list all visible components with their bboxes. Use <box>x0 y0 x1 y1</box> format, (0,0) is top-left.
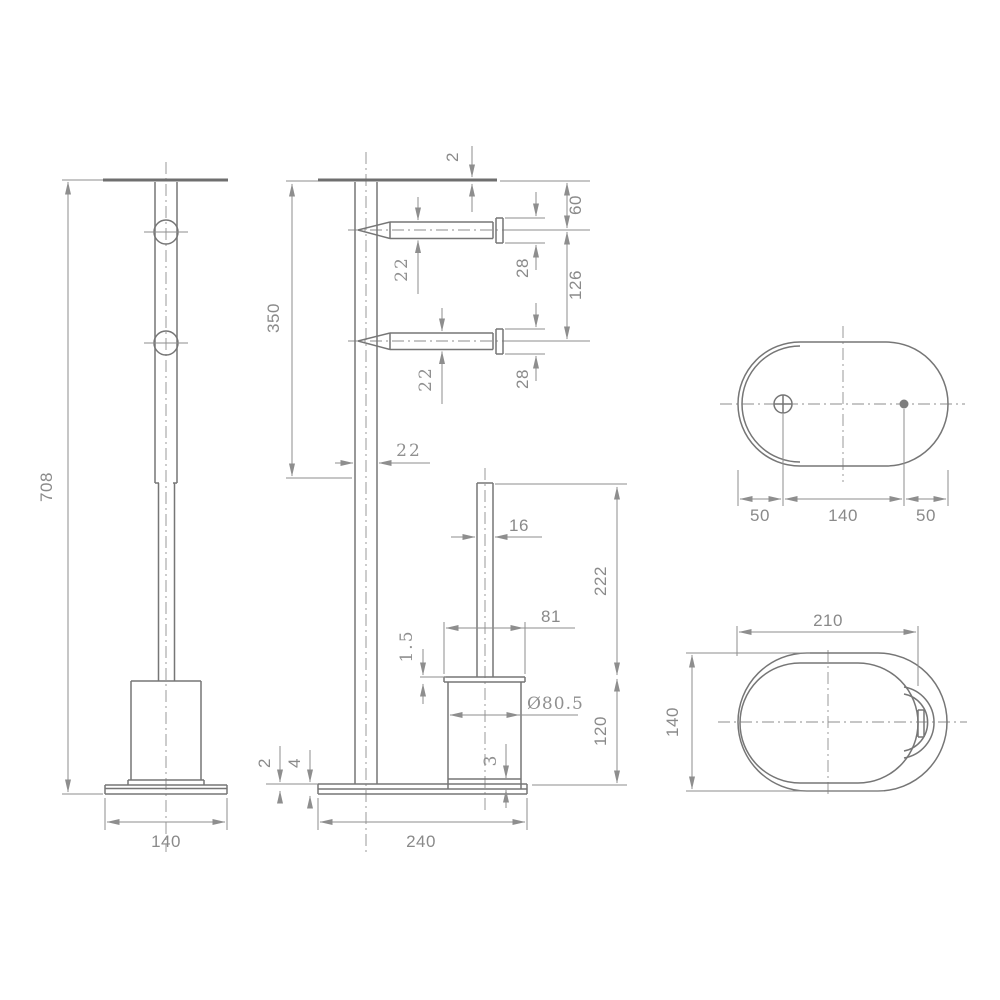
dim-arm2-end: 28 <box>513 369 532 389</box>
dim-cup-top-width: 81 <box>541 607 561 626</box>
dim-plate-left-offset: 50 <box>750 506 770 525</box>
plate-top-centerlines <box>720 326 965 482</box>
side-view: 2 350 60 126 28 22 28 22 22 16 <box>255 146 627 852</box>
dim-arm-spacing: 126 <box>566 270 585 300</box>
cup-top-view: 210 140 <box>663 611 967 795</box>
dim-top-to-arm: 60 <box>566 195 585 215</box>
dim-upper-height: 350 <box>264 303 283 333</box>
side-view-paper-arm-lower <box>358 329 503 354</box>
cup-top-pole-section <box>918 710 924 737</box>
cup-top-clip-arcs <box>904 687 934 758</box>
dim-handle-width: 16 <box>509 516 529 535</box>
dim-cup-foot: 3 <box>481 754 501 767</box>
technical-drawing-sheet: 708 140 2 350 60 126 28 22 <box>0 0 1000 1000</box>
dim-base-length: 240 <box>406 832 436 851</box>
dim-base-thickness: 4 <box>285 758 304 768</box>
side-view-base-plate <box>318 784 527 794</box>
dim-base-sheet: 2 <box>255 758 274 768</box>
dim-arm1-tube: 22 <box>392 256 412 282</box>
side-view-brush-cup <box>444 677 525 789</box>
dim-cup-diameter: Ø80.5 <box>527 694 584 714</box>
dim-plate-hole-spacing: 140 <box>828 506 858 525</box>
dim-arm2-tube: 22 <box>416 366 436 392</box>
dim-cup-top-length: 210 <box>813 611 843 630</box>
dim-pole-width: 22 <box>396 441 422 461</box>
dim-handle-height: 222 <box>591 566 610 596</box>
plate-top-view: 50 140 50 <box>720 326 965 525</box>
drawing-canvas: 708 140 2 350 60 126 28 22 <box>0 0 1000 1000</box>
dim-top-plate: 2 <box>443 152 462 162</box>
dim-cup-top-depth: 140 <box>663 707 682 737</box>
dim-plate-right-offset: 50 <box>916 506 936 525</box>
dim-arm1-end: 28 <box>513 258 532 278</box>
cup-top-inner-outline <box>740 663 918 783</box>
dim-front-height: 708 <box>37 472 56 502</box>
dim-cup-height: 120 <box>591 716 610 746</box>
side-view-paper-arm-upper <box>358 218 503 243</box>
dim-cup-rim: 1.5 <box>397 629 417 662</box>
front-view: 708 140 <box>37 162 228 852</box>
cup-top-centerlines <box>718 650 967 795</box>
side-view-centerlines <box>348 152 512 852</box>
dim-front-base-width: 140 <box>151 832 181 851</box>
cup-top-extension-lines <box>686 626 918 791</box>
front-view-extension-lines <box>62 180 227 830</box>
plate-pin-hole <box>900 400 909 409</box>
